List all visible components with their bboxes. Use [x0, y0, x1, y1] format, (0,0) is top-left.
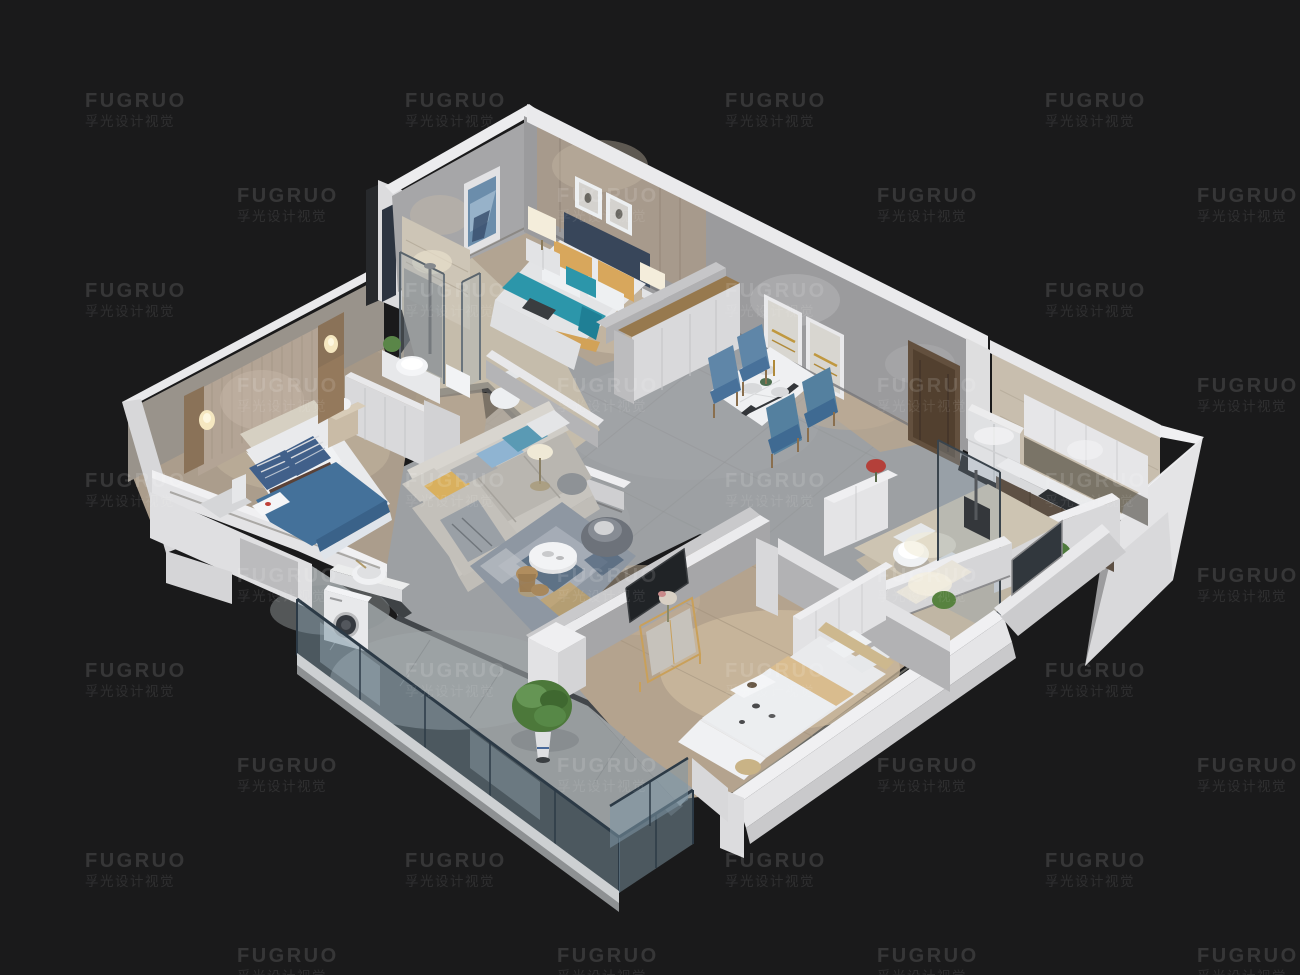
svg-text:孚光设计视觉: 孚光设计视觉	[85, 114, 175, 129]
svg-text:FUGRUO: FUGRUO	[237, 375, 339, 397]
svg-text:FUGRUO: FUGRUO	[85, 90, 187, 112]
svg-text:FUGRUO: FUGRUO	[725, 660, 827, 682]
svg-text:FUGRUO: FUGRUO	[1197, 945, 1299, 967]
svg-text:孚光设计视觉: 孚光设计视觉	[1197, 399, 1287, 414]
svg-text:孚光设计视觉: 孚光设计视觉	[877, 399, 967, 414]
svg-text:FUGRUO: FUGRUO	[557, 945, 659, 967]
svg-text:孚光设计视觉: 孚光设计视觉	[1197, 589, 1287, 604]
svg-text:孚光设计视觉: 孚光设计视觉	[1197, 779, 1287, 794]
svg-text:FUGRUO: FUGRUO	[237, 945, 339, 967]
svg-text:孚光设计视觉: 孚光设计视觉	[557, 779, 647, 794]
svg-text:孚光设计视觉: 孚光设计视觉	[557, 589, 647, 604]
svg-text:FUGRUO: FUGRUO	[557, 755, 659, 777]
svg-text:FUGRUO: FUGRUO	[405, 660, 507, 682]
svg-text:FUGRUO: FUGRUO	[237, 565, 339, 587]
svg-text:孚光设计视觉: 孚光设计视觉	[405, 874, 495, 889]
svg-text:孚光设计视觉: 孚光设计视觉	[725, 114, 815, 129]
svg-text:孚光设计视觉: 孚光设计视觉	[85, 494, 175, 509]
svg-text:FUGRUO: FUGRUO	[1045, 660, 1147, 682]
svg-text:孚光设计视觉: 孚光设计视觉	[1197, 209, 1287, 224]
svg-text:FUGRUO: FUGRUO	[725, 280, 827, 302]
svg-text:孚光设计视觉: 孚光设计视觉	[237, 399, 327, 414]
svg-text:FUGRUO: FUGRUO	[1197, 755, 1299, 777]
svg-text:孚光设计视觉: 孚光设计视觉	[237, 779, 327, 794]
svg-text:孚光设计视觉: 孚光设计视觉	[1045, 304, 1135, 319]
svg-text:FUGRUO: FUGRUO	[85, 280, 187, 302]
svg-text:孚光设计视觉: 孚光设计视觉	[1045, 114, 1135, 129]
svg-text:FUGRUO: FUGRUO	[85, 470, 187, 492]
svg-text:FUGRUO: FUGRUO	[877, 945, 979, 967]
svg-text:FUGRUO: FUGRUO	[557, 375, 659, 397]
svg-text:FUGRUO: FUGRUO	[405, 470, 507, 492]
svg-text:孚光设计视觉: 孚光设计视觉	[85, 874, 175, 889]
svg-text:孚光设计视觉: 孚光设计视觉	[405, 494, 495, 509]
svg-text:FUGRUO: FUGRUO	[237, 185, 339, 207]
svg-text:孚光设计视觉: 孚光设计视觉	[557, 399, 647, 414]
svg-text:孚光设计视觉: 孚光设计视觉	[237, 209, 327, 224]
svg-text:FUGRUO: FUGRUO	[1197, 375, 1299, 397]
svg-text:孚光设计视觉: 孚光设计视觉	[1045, 684, 1135, 699]
svg-text:FUGRUO: FUGRUO	[725, 850, 827, 872]
svg-text:孚光设计视觉: 孚光设计视觉	[877, 969, 967, 975]
svg-text:孚光设计视觉: 孚光设计视觉	[725, 494, 815, 509]
svg-text:孚光设计视觉: 孚光设计视觉	[1045, 874, 1135, 889]
svg-text:孚光设计视觉: 孚光设计视觉	[237, 589, 327, 604]
svg-text:孚光设计视觉: 孚光设计视觉	[405, 114, 495, 129]
svg-text:孚光设计视觉: 孚光设计视觉	[237, 969, 327, 975]
svg-text:孚光设计视觉: 孚光设计视觉	[557, 969, 647, 975]
svg-text:孚光设计视觉: 孚光设计视觉	[877, 209, 967, 224]
svg-text:孚光设计视觉: 孚光设计视觉	[405, 304, 495, 319]
svg-text:孚光设计视觉: 孚光设计视觉	[725, 684, 815, 699]
svg-text:FUGRUO: FUGRUO	[877, 375, 979, 397]
svg-text:FUGRUO: FUGRUO	[557, 185, 659, 207]
svg-text:孚光设计视觉: 孚光设计视觉	[85, 304, 175, 319]
svg-text:FUGRUO: FUGRUO	[1197, 565, 1299, 587]
svg-text:孚光设计视觉: 孚光设计视觉	[405, 684, 495, 699]
svg-text:FUGRUO: FUGRUO	[877, 185, 979, 207]
svg-text:FUGRUO: FUGRUO	[237, 755, 339, 777]
svg-text:FUGRUO: FUGRUO	[1045, 280, 1147, 302]
svg-text:孚光设计视觉: 孚光设计视觉	[1197, 969, 1287, 975]
svg-text:FUGRUO: FUGRUO	[405, 850, 507, 872]
svg-text:FUGRUO: FUGRUO	[725, 90, 827, 112]
svg-text:FUGRUO: FUGRUO	[1045, 850, 1147, 872]
svg-text:FUGRUO: FUGRUO	[877, 755, 979, 777]
svg-text:FUGRUO: FUGRUO	[405, 90, 507, 112]
svg-text:FUGRUO: FUGRUO	[1045, 470, 1147, 492]
svg-text:孚光设计视觉: 孚光设计视觉	[1045, 494, 1135, 509]
svg-text:FUGRUO: FUGRUO	[1045, 90, 1147, 112]
svg-text:FUGRUO: FUGRUO	[725, 470, 827, 492]
svg-text:孚光设计视觉: 孚光设计视觉	[725, 304, 815, 319]
svg-text:FUGRUO: FUGRUO	[405, 280, 507, 302]
svg-text:FUGRUO: FUGRUO	[1197, 185, 1299, 207]
svg-text:孚光设计视觉: 孚光设计视觉	[725, 874, 815, 889]
svg-text:孚光设计视觉: 孚光设计视觉	[877, 589, 967, 604]
svg-text:FUGRUO: FUGRUO	[557, 565, 659, 587]
svg-text:孚光设计视觉: 孚光设计视觉	[877, 779, 967, 794]
svg-text:FUGRUO: FUGRUO	[877, 565, 979, 587]
svg-text:FUGRUO: FUGRUO	[85, 660, 187, 682]
svg-text:孚光设计视觉: 孚光设计视觉	[557, 209, 647, 224]
svg-text:孚光设计视觉: 孚光设计视觉	[85, 684, 175, 699]
svg-text:FUGRUO: FUGRUO	[85, 850, 187, 872]
